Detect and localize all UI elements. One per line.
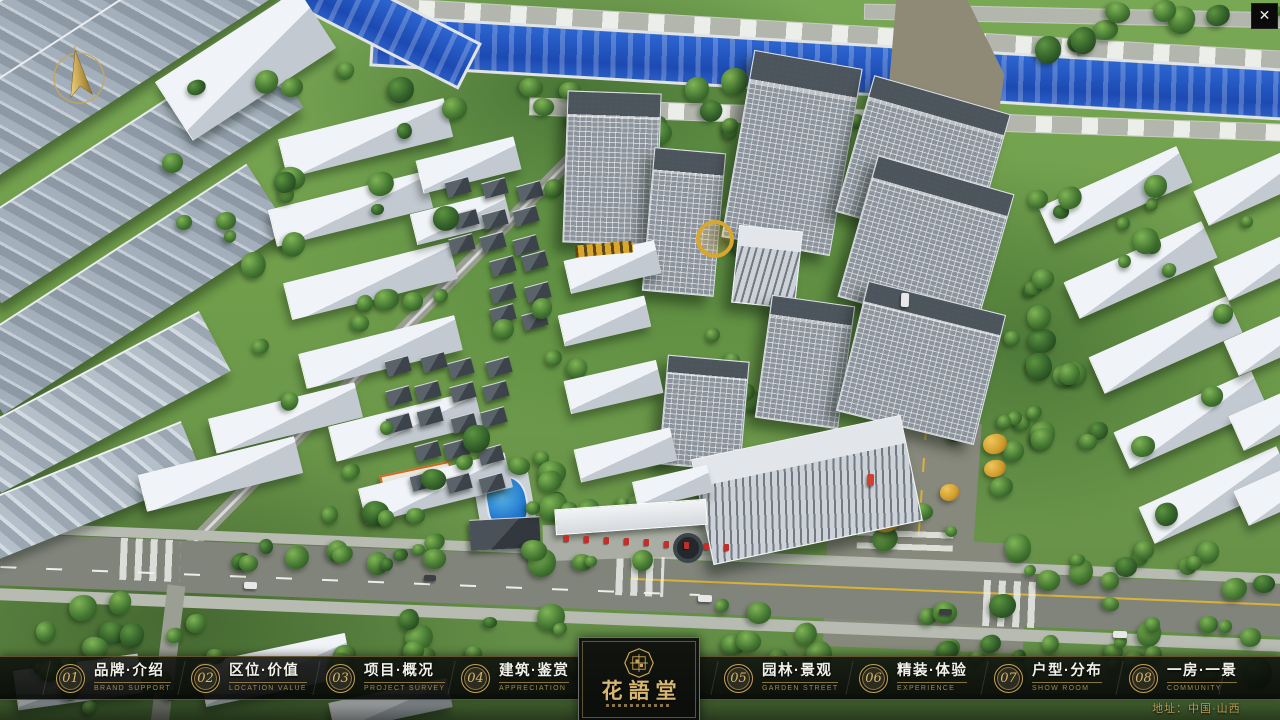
nav-item-divider-rule bbox=[1167, 682, 1237, 683]
nav-item-number-badge: 01 bbox=[56, 664, 85, 693]
midrise-building bbox=[558, 295, 652, 346]
tree bbox=[463, 425, 490, 453]
nav-item-label-en: LOCATION VALUE bbox=[229, 685, 307, 692]
tree bbox=[120, 623, 145, 649]
tree bbox=[720, 67, 749, 96]
tree bbox=[185, 613, 206, 634]
nav-item-label-zh: 精装·体验 bbox=[897, 664, 967, 679]
nav-item-divider-rule bbox=[762, 682, 838, 683]
nav-divider bbox=[845, 661, 853, 695]
nav-item-label-zh: 项目·概况 bbox=[364, 664, 434, 679]
nav-item-label-zh: 一房·一景 bbox=[1167, 664, 1237, 679]
nav-divider bbox=[980, 661, 988, 695]
nav-item-number-badge: 03 bbox=[326, 664, 355, 693]
nav-item-number-badge: 07 bbox=[994, 664, 1023, 693]
tree bbox=[697, 97, 725, 126]
nav-item-project-survey[interactable]: 03 项目·概况 PROJECT SURVEY bbox=[326, 657, 445, 699]
tree bbox=[373, 288, 399, 310]
nav-item-label-en: COMMUNITY bbox=[1167, 685, 1222, 692]
nav-item-number-badge: 02 bbox=[191, 664, 220, 693]
nav-item-label-zh: 户型·分布 bbox=[1032, 664, 1102, 679]
parked-car bbox=[584, 536, 589, 543]
tree bbox=[335, 61, 356, 83]
building-slab bbox=[1193, 134, 1280, 226]
villa-block bbox=[447, 357, 474, 379]
nav-item-divider-rule bbox=[499, 682, 569, 683]
project-address: 地址：中国·山西 bbox=[1152, 700, 1241, 716]
nav-item-brand-intro[interactable]: 01 品牌·介绍 BRAND SUPPORT bbox=[56, 657, 171, 699]
tree bbox=[441, 97, 466, 121]
nav-item-divider-rule bbox=[897, 682, 967, 683]
nav-item-label-en: BRAND SUPPORT bbox=[94, 685, 171, 692]
nav-item-divider-rule bbox=[364, 682, 445, 683]
tree bbox=[940, 483, 959, 500]
villa-block bbox=[480, 406, 507, 428]
vehicle bbox=[424, 575, 436, 581]
nav-item-number-badge: 04 bbox=[461, 664, 490, 693]
parked-car bbox=[684, 542, 689, 549]
nav-item-divider-rule bbox=[229, 682, 307, 683]
nav-divider bbox=[1115, 661, 1123, 695]
gold-art-feature bbox=[696, 220, 734, 258]
vehicle bbox=[866, 474, 873, 486]
nav-item-floorplan[interactable]: 07 户型·分布 SHOW ROOM bbox=[994, 657, 1102, 699]
villa-block bbox=[479, 231, 506, 253]
tree bbox=[402, 291, 423, 312]
tree bbox=[340, 462, 362, 482]
tree bbox=[1145, 198, 1158, 211]
nav-item-location-value[interactable]: 02 区位·价值 LOCATION VALUE bbox=[191, 657, 307, 699]
villa-block bbox=[415, 440, 442, 462]
tree bbox=[1003, 330, 1022, 348]
nav-item-number-badge: 05 bbox=[724, 664, 753, 693]
tree bbox=[250, 337, 271, 356]
tree bbox=[1240, 215, 1254, 229]
parked-car bbox=[644, 539, 649, 546]
villa-block bbox=[489, 282, 516, 304]
nav-item-number-badge: 06 bbox=[859, 664, 888, 693]
nav-item-label-zh: 品牌·介绍 bbox=[94, 664, 164, 679]
tree bbox=[356, 294, 374, 313]
tree bbox=[1115, 216, 1131, 231]
presentation-viewport: ✕ 01 品牌·介绍 BRAND SUPPORT 02 区位·价值 LOCATI… bbox=[0, 0, 1280, 720]
villa-block bbox=[386, 385, 413, 407]
tree bbox=[350, 314, 371, 334]
parked-car bbox=[724, 544, 729, 551]
nav-divider bbox=[447, 661, 455, 695]
tree bbox=[320, 503, 340, 524]
nav-item-divider-rule bbox=[94, 682, 171, 683]
tree bbox=[1027, 189, 1048, 210]
tree bbox=[386, 76, 415, 104]
project-logo[interactable]: 花語堂 bbox=[578, 637, 700, 720]
nav-item-interior-experience[interactable]: 06 精装·体验 EXPERIENCE bbox=[859, 657, 967, 699]
nav-item-label-en: EXPERIENCE bbox=[897, 685, 955, 692]
tree bbox=[544, 349, 564, 367]
residential-tower bbox=[562, 90, 661, 245]
tree bbox=[517, 77, 543, 100]
nav-item-room-view[interactable]: 08 一房·一景 COMMUNITY bbox=[1129, 657, 1237, 699]
vehicle bbox=[901, 293, 909, 307]
tree bbox=[405, 507, 426, 525]
logo-caption-text bbox=[606, 704, 672, 707]
tree bbox=[1093, 20, 1118, 41]
tree bbox=[983, 459, 1007, 479]
logo-seal-emblem bbox=[622, 647, 656, 679]
parked-car bbox=[664, 541, 669, 548]
vehicle bbox=[243, 581, 256, 588]
nav-item-divider-rule bbox=[1032, 682, 1102, 683]
nav-item-garden-landscape[interactable]: 05 园林·景观 GARDEN STREET bbox=[724, 657, 838, 699]
nav-item-label-en: GARDEN STREET bbox=[762, 685, 838, 692]
parked-car bbox=[564, 535, 569, 542]
nav-item-label-en: SHOW ROOM bbox=[1032, 685, 1089, 692]
nav-divider bbox=[42, 661, 50, 695]
villa-block bbox=[485, 356, 512, 378]
villa-block bbox=[482, 381, 509, 403]
parked-car bbox=[624, 538, 629, 545]
tree bbox=[525, 500, 540, 515]
vehicle bbox=[938, 609, 951, 615]
nav-item-label-zh: 建筑·鉴赏 bbox=[499, 664, 569, 679]
parked-car bbox=[704, 543, 709, 550]
parked-car bbox=[604, 537, 609, 544]
tree bbox=[705, 327, 721, 343]
nav-item-number-badge: 08 bbox=[1129, 664, 1158, 693]
compass-north-indicator bbox=[46, 40, 112, 112]
nav-item-label-zh: 区位·价值 bbox=[229, 664, 299, 679]
aerial-masterplan-render[interactable] bbox=[0, 0, 1280, 720]
nav-item-architecture[interactable]: 04 建筑·鉴赏 APPRECIATION bbox=[461, 657, 569, 699]
tree bbox=[493, 318, 516, 341]
vehicle bbox=[1113, 630, 1127, 637]
tree bbox=[34, 620, 58, 645]
nav-divider bbox=[177, 661, 185, 695]
nav-item-label-en: APPRECIATION bbox=[499, 685, 566, 692]
villa-block bbox=[490, 255, 517, 277]
nav-divider bbox=[312, 661, 320, 695]
tree bbox=[685, 76, 709, 101]
crosswalk bbox=[119, 538, 181, 582]
project-name: 花語堂 bbox=[596, 680, 683, 702]
nav-item-label-zh: 园林·景观 bbox=[762, 664, 832, 679]
tree bbox=[483, 617, 497, 629]
nav-item-label-en: PROJECT SURVEY bbox=[364, 685, 445, 692]
tree bbox=[1024, 351, 1055, 383]
tree bbox=[585, 556, 598, 567]
residential-tower bbox=[731, 225, 803, 309]
tree bbox=[377, 510, 394, 527]
nav-divider bbox=[710, 661, 718, 695]
tree bbox=[1025, 303, 1053, 331]
tree bbox=[280, 76, 304, 97]
tree bbox=[989, 476, 1015, 499]
tree bbox=[68, 595, 96, 622]
close-button[interactable]: ✕ bbox=[1251, 3, 1278, 29]
tree bbox=[1004, 533, 1031, 563]
vehicle bbox=[698, 594, 712, 601]
tree bbox=[1028, 329, 1056, 353]
